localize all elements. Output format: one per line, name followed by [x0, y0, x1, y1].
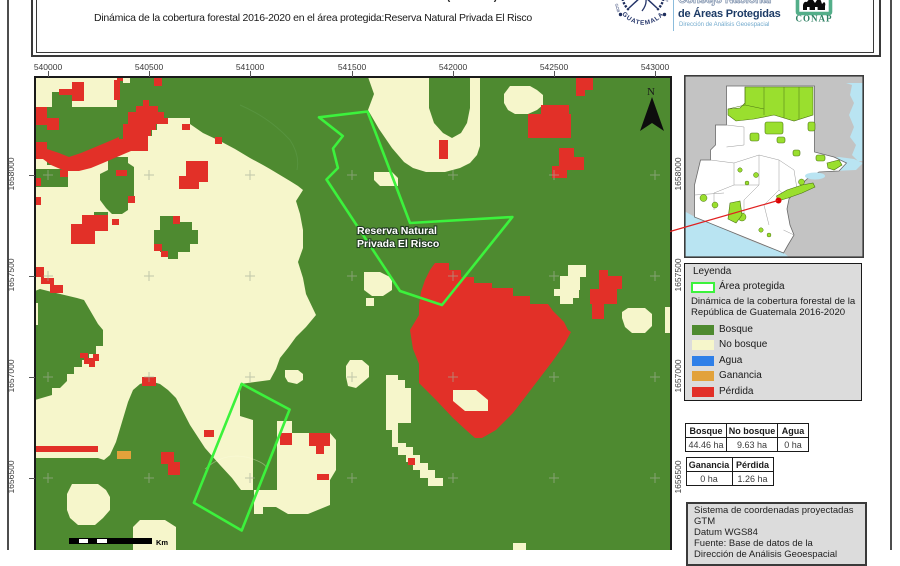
svg-text:ICA: ICA — [664, 0, 671, 2]
svg-text:GOB: GOB — [614, 3, 621, 13]
svg-text:CONAP: CONAP — [796, 14, 833, 24]
svg-text:GUATEMALA: GUATEMALA — [620, 11, 665, 27]
